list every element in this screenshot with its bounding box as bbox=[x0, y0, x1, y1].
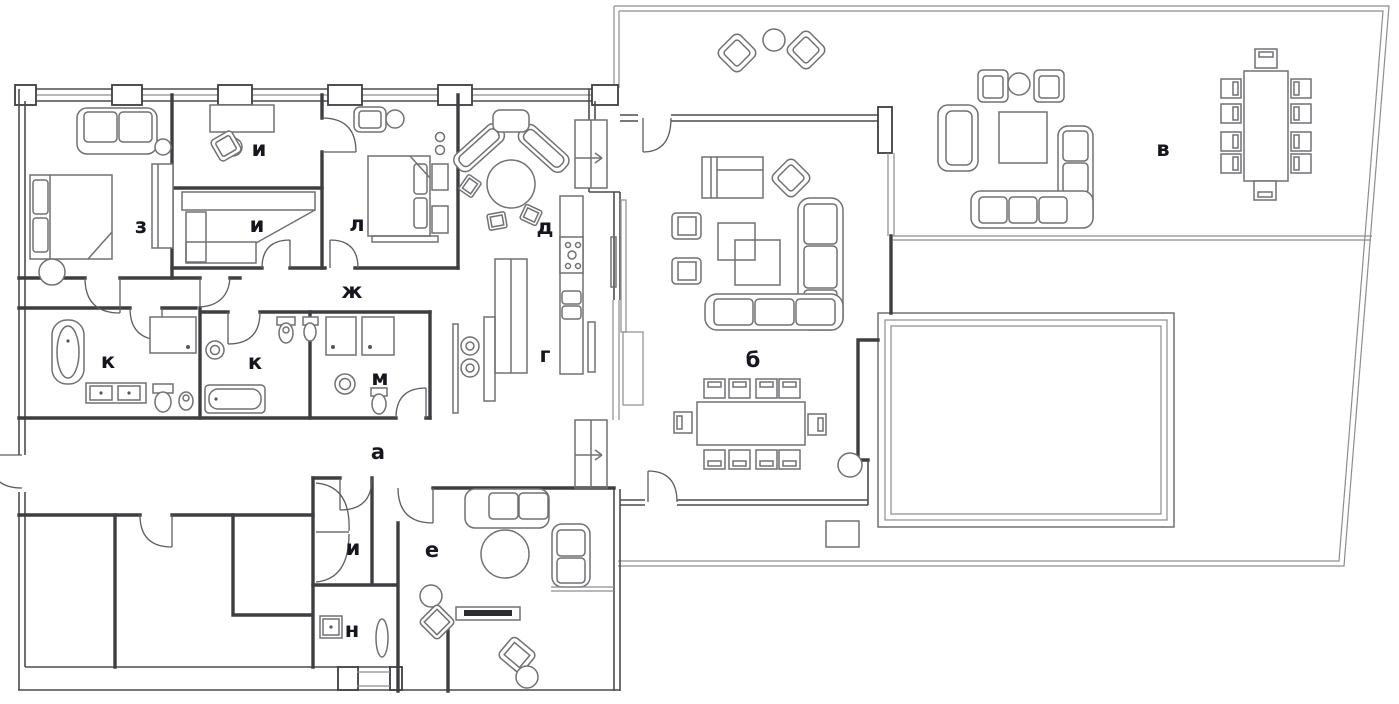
side-table bbox=[155, 139, 171, 155]
plant bbox=[838, 453, 862, 477]
toilet bbox=[155, 392, 171, 412]
corner-bench bbox=[493, 110, 529, 132]
round-table bbox=[487, 160, 535, 208]
bar-stool bbox=[461, 337, 479, 355]
side-table bbox=[516, 666, 538, 688]
pedestal-sink bbox=[206, 341, 224, 359]
room-label-a: а bbox=[371, 440, 385, 464]
room-label-i-closet: и bbox=[346, 536, 361, 560]
round-sink bbox=[335, 374, 355, 394]
toilet bbox=[372, 394, 386, 414]
room-label-i-middle: и bbox=[250, 213, 265, 237]
room-label-k-left: к bbox=[101, 349, 115, 373]
room-label-d: д bbox=[537, 215, 554, 239]
room-label-v: в bbox=[1156, 137, 1169, 161]
pouf bbox=[420, 585, 442, 607]
room-label-g: г bbox=[540, 343, 551, 367]
bar-stool bbox=[461, 359, 479, 377]
round-table bbox=[481, 530, 529, 578]
room-label-k-right: к bbox=[248, 350, 262, 374]
shower bbox=[326, 317, 356, 355]
shower bbox=[362, 317, 394, 355]
nightstand bbox=[432, 164, 448, 190]
room-label-e: е bbox=[425, 538, 439, 562]
dining-table bbox=[697, 402, 805, 445]
counter bbox=[560, 196, 583, 374]
room-label-zh: ж bbox=[342, 279, 363, 303]
floor-plan-svg: а б в г д е ж з и и и к к л м н bbox=[0, 0, 1399, 704]
terrace-dining-table bbox=[1244, 71, 1288, 181]
wardrobe bbox=[152, 164, 173, 248]
door-leaf bbox=[376, 619, 388, 657]
room-label-m: м bbox=[371, 366, 388, 390]
terrace-side-table bbox=[763, 29, 785, 51]
room-label-l: л bbox=[349, 212, 364, 236]
room-label-z: з bbox=[135, 214, 147, 238]
room-label-n: н bbox=[345, 618, 360, 642]
floor-plan-page: а б в г д е ж з и и и к к л м н bbox=[0, 0, 1399, 704]
bidet bbox=[304, 323, 316, 341]
room-label-i-study: и bbox=[252, 137, 267, 161]
plant bbox=[39, 259, 65, 285]
terrace-coffee-table bbox=[999, 112, 1047, 163]
nightstand bbox=[432, 206, 448, 233]
sofa bbox=[465, 489, 549, 528]
desk bbox=[210, 105, 274, 132]
room-label-b: б bbox=[746, 348, 761, 372]
